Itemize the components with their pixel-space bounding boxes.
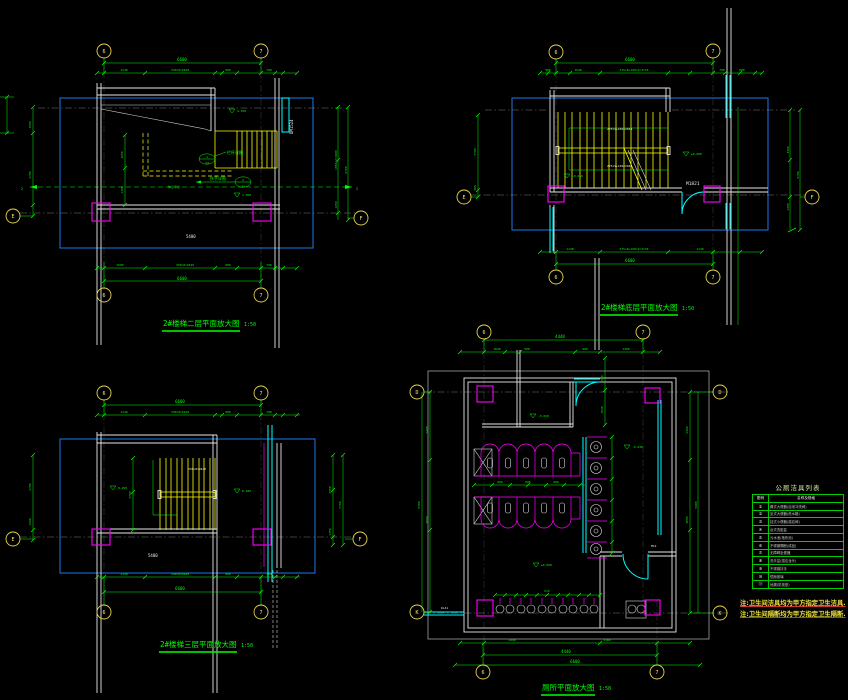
cad-sheet: 2 2 DM1524 66	[0, 0, 848, 700]
dim-label: 760	[266, 68, 272, 72]
legend-name: 不锈钢隔断(成品)	[769, 541, 844, 549]
legend-row: ②坐式大便器(低水箱)	[753, 510, 844, 518]
level-marker: -0.020 -0.020 ±0.000	[530, 414, 643, 567]
legend-row: ⑦无障碍坐便器	[753, 549, 844, 557]
dim-label: 1140	[120, 410, 127, 414]
dim-label: 3300	[328, 486, 332, 493]
dim-label: 3000	[685, 516, 689, 523]
room-dim-label: 5400	[148, 553, 158, 558]
drawing-scale: 1:50	[241, 643, 253, 649]
axis-bubble-label: F	[358, 537, 361, 543]
window	[550, 75, 730, 251]
dim-label: 330×8=2640	[176, 263, 194, 267]
dim-label: 1500	[116, 263, 123, 267]
dim-label: 760	[266, 572, 272, 576]
leader-arrow	[196, 181, 201, 184]
level-value: 4.350	[237, 109, 246, 113]
wc-column	[583, 437, 607, 558]
dim-label: 275×8+169×2=2718	[620, 68, 649, 72]
dim-label: 1350	[328, 528, 332, 535]
axis-bubble-label: F	[359, 216, 362, 222]
dim-label: 500	[524, 347, 530, 351]
dim-label: 1140	[120, 572, 127, 576]
plan-top-right: 275×9+169=2644 275×9+169=2644 M1821 6600…	[457, 8, 819, 350]
axis-bubble-label: 7	[259, 49, 262, 55]
dim-label: 600	[553, 480, 559, 484]
legend-symbol: ⑧	[753, 557, 769, 565]
dim-label: 900	[545, 68, 551, 72]
axis-bubble-label: D	[718, 390, 721, 396]
legend-row: ⑧洗手盆(感应龙头)	[753, 557, 844, 565]
dim-label: 1200	[28, 518, 32, 525]
door-label: M12	[651, 544, 657, 548]
dim-label: 1650×2=3300	[334, 150, 338, 170]
cad-canvas: 2 2 DM1524 66	[0, 0, 848, 700]
section-mark: 2	[21, 187, 23, 191]
dim-label: 2700	[28, 171, 32, 178]
handrail-cap	[556, 147, 559, 155]
axis-bubble-label: 7	[711, 275, 714, 281]
column	[253, 203, 271, 221]
handrail	[558, 148, 668, 153]
entry-door-arc	[576, 382, 600, 406]
axis-bubble-label: 6	[102, 610, 105, 616]
legend-name: 蹲式大便器(自闭冲洗阀)	[769, 502, 844, 510]
dimension-lines	[422, 338, 713, 667]
window	[282, 98, 289, 132]
level-value: 8.100	[242, 489, 251, 493]
drawing-title-block: 2#楼梯三层平面放大图 1:50	[159, 639, 253, 652]
dim-label: 1350	[786, 203, 790, 210]
legend-header-name: 名称及规格	[769, 495, 844, 503]
squat-toilet	[560, 503, 565, 513]
squat-toilet	[542, 458, 547, 468]
axis-bubble-label: F	[810, 195, 813, 201]
basin-row	[496, 598, 645, 613]
plan-bottom-left: 330×8=2640 6600 1140 330×8=2640 900 760 …	[6, 386, 367, 693]
notes-block: 注:卫生间洁具均为甲方指定卫生洁具. 注:卫生间隔断均为甲方指定卫生隔断.	[740, 599, 848, 620]
dim-label: 2400	[425, 426, 429, 433]
walls	[550, 8, 768, 350]
dim-label: 330×8=2640	[171, 410, 189, 414]
callout-num: 1	[206, 155, 208, 159]
level-value: ±0.000	[691, 152, 702, 156]
handrail-cap	[667, 147, 670, 155]
dim-label: 900	[225, 572, 231, 576]
axis-bubble-label: 7	[259, 293, 262, 299]
legend-symbol: ⑦	[753, 549, 769, 557]
dim-label: 6600	[175, 586, 185, 591]
column	[477, 600, 493, 616]
callout-num: 2	[242, 178, 244, 182]
dim-label: 760	[266, 410, 272, 414]
dim-label: 4440	[555, 334, 565, 339]
dim-label: 1140	[696, 247, 703, 251]
room-dim-label: 5400	[186, 234, 196, 239]
drawing-title-block: 2#楼梯底层平面放大图 1:50	[600, 302, 694, 315]
dim-label: 330×8=2640	[171, 68, 189, 72]
dim-label: 3160	[603, 638, 610, 642]
drawing-scale: 1:50	[682, 306, 694, 312]
level-marker: -0.450 ±0.000	[564, 152, 702, 178]
tread-note: 275×9+169=2644	[607, 127, 632, 131]
drawing-title: 厕所平面放大图	[542, 682, 595, 692]
axis-bubble-label: 7	[711, 49, 714, 55]
stair-treads: 275×9+169=2644 275×9+169=2644	[556, 112, 670, 190]
dim-label: 300	[473, 185, 477, 191]
squat-toilet	[542, 503, 547, 513]
legend-name: 洗手盆(感应龙头)	[769, 557, 844, 565]
axis-bubble-label: E	[11, 214, 14, 220]
level-value: -0.020	[632, 445, 643, 449]
dim-label: 900	[600, 375, 604, 381]
stair-treads: 330×8=2640	[153, 458, 216, 530]
legend-header-sym: 图例	[753, 495, 769, 503]
tread-note: 275×9+169=2644	[607, 164, 632, 168]
callout-text: 扶手详图	[210, 175, 226, 181]
dim-label: 800	[739, 68, 745, 72]
legend-row: ⑩镜面玻璃	[753, 572, 844, 580]
detail-callout: 1 24 栏杆详图	[199, 149, 243, 165]
dim-label: 1500	[28, 121, 32, 128]
dimension-labels: 6600 1140 330×8=2640 900 760 1140 330×8=…	[28, 399, 342, 591]
dim-label: 760	[266, 263, 272, 267]
legend-row: ⑨不锈钢扶手	[753, 565, 844, 573]
legend-name: 无障碍坐便器	[769, 549, 844, 557]
dim-label: 6600	[175, 399, 185, 404]
dim-label: 2700	[128, 491, 132, 498]
axis-bubble-label: 7	[655, 670, 658, 676]
plan-toilet: M12 DL41 4440 1640 500 900 1400 1440 31	[410, 325, 730, 695]
column	[477, 386, 493, 402]
dim-label: 900	[582, 347, 588, 351]
dim-label: 1140	[120, 68, 127, 72]
squat-toilet	[524, 458, 529, 468]
dim-label: 900	[225, 263, 231, 267]
dim-label: 2400	[685, 426, 689, 433]
legend-row: ③挂式小便器(感应阀)	[753, 518, 844, 526]
legend-header-row: 图例 名称及规格	[753, 495, 844, 503]
dimension-labels: 6600 1140 330×8=2640 900 760 1500 330×8=…	[28, 57, 348, 281]
door: M1821	[682, 181, 704, 214]
dimension-lines	[0, 58, 354, 288]
axis-bubble-label: 6	[481, 670, 484, 676]
level-value: -0.450	[572, 174, 583, 178]
callout-sheet: 24	[205, 161, 209, 165]
legend-name: 镜面玻璃	[769, 572, 844, 580]
walls	[97, 432, 281, 693]
dim-label: 1440	[508, 638, 515, 642]
dim-label: 1350	[334, 201, 338, 208]
legend-symbol: ①	[753, 502, 769, 510]
dim-label: 3000	[425, 516, 429, 523]
drawing-title: 2#楼梯底层平面放大图	[601, 302, 678, 312]
axis-bubble-label: 6	[102, 391, 105, 397]
squat-toilet	[560, 458, 565, 468]
level-value: -0.020	[538, 414, 549, 418]
axis-bubble-label: E	[462, 195, 465, 201]
legend-name: 不锈钢扶手	[769, 565, 844, 573]
section-line: 2 2	[21, 185, 358, 191]
axis-bubble-label: 7	[259, 610, 262, 616]
legend-row: ①蹲式大便器(自闭冲洗阀)	[753, 502, 844, 510]
legend-row: ⑤污水池(拖布池)	[753, 533, 844, 541]
axis-bubble-label: 6	[102, 49, 105, 55]
dim-label: 5700	[344, 166, 348, 173]
dim-label: 4440	[561, 649, 571, 654]
axis-bubble-label: 7	[259, 391, 262, 397]
inner-door-arc	[623, 554, 648, 579]
dim-label: 2700	[473, 148, 477, 155]
legend-symbol: ③	[753, 518, 769, 526]
drawing-scale: 1:50	[599, 686, 611, 692]
level-value: 1.050	[242, 193, 251, 197]
dim-label: 700	[719, 68, 725, 72]
legend-table: 图例 名称及规格 ①蹲式大便器(自闭冲洗阀) ②坐式大便器(低水箱) ③挂式小便…	[752, 494, 844, 589]
dim-label: 6600	[177, 57, 187, 62]
axis-bubble-label: D	[415, 390, 418, 396]
dim-label: 6600	[625, 258, 635, 263]
dim-label: 600	[525, 480, 531, 484]
dim-label: 2700	[28, 483, 32, 490]
platform-label: 休息平台	[168, 184, 180, 189]
axis-bubble-label: K	[718, 611, 721, 617]
fixture-legend: 公厕洁具列表 图例 名称及规格 ①蹲式大便器(自闭冲洗阀) ②坐式大便器(低水箱…	[748, 482, 848, 589]
legend-name: 挂式小便器(感应阀)	[769, 518, 844, 526]
axis-bubble-label: K	[415, 610, 418, 616]
drawing-title: 2#楼梯三层平面放大图	[160, 639, 237, 649]
door-label: M1821	[686, 181, 700, 187]
dim-label: 1650	[120, 151, 124, 158]
axis-bubble-label: 6	[482, 330, 485, 336]
level-value: ±0.000	[541, 563, 552, 567]
legend-symbol: ⑨	[753, 565, 769, 573]
legend-symbol: ⑥	[753, 541, 769, 549]
legend-name: 坐式大便器(低水箱)	[769, 510, 844, 518]
handrail	[160, 492, 215, 497]
axis-bubble-label: E	[11, 537, 14, 543]
drawing-scale: 1:50	[244, 322, 256, 328]
dim-label: 615	[544, 589, 550, 593]
axis-bubble-label: 7	[641, 330, 644, 336]
window	[264, 425, 272, 582]
handrail-cap	[158, 491, 161, 499]
dim-label: 5400	[694, 501, 698, 508]
dim-label: 1540	[600, 406, 604, 413]
dim-label: 1140	[566, 247, 573, 251]
legend-name: 污水池(拖布池)	[769, 533, 844, 541]
legend-name: 地漏(防臭型)	[769, 580, 844, 588]
dim-label: 1640	[493, 347, 500, 351]
dim-label: 5700	[338, 501, 342, 508]
callout-sheet: 24	[241, 185, 245, 189]
handrail-cap	[213, 491, 216, 499]
legend-name: 台式洗脸盆	[769, 526, 844, 534]
legend-symbol: ⑤	[753, 533, 769, 541]
walls	[464, 350, 676, 632]
legend-symbol: ⑩	[753, 572, 769, 580]
squat-toilet	[524, 503, 529, 513]
dim-label: 275×8+169×2=2718	[620, 247, 649, 251]
dim-label: 1100	[120, 186, 124, 193]
wall-accents: DL41	[424, 400, 661, 615]
dim-label: 6600	[625, 57, 635, 62]
dim-label: 330×8=2640	[171, 572, 189, 576]
outer-boundary	[428, 371, 709, 639]
legend-symbol: ④	[753, 526, 769, 534]
dim-label: 6600	[177, 276, 187, 281]
note-line: 注:卫生间隔断均为甲方指定卫生隔断.	[740, 610, 848, 621]
legend-row: ⑪地漏(防臭型)	[753, 580, 844, 588]
legend-title: 公厕洁具列表	[748, 482, 848, 492]
callout-text: 栏杆详图	[227, 149, 243, 155]
dim-label: 3300	[786, 146, 790, 153]
section-mark: 2	[356, 187, 358, 191]
tread-note: 330×8=2640	[188, 467, 206, 471]
legend-row: ④台式洗脸盆	[753, 526, 844, 534]
dim-label: 900	[225, 68, 231, 72]
drawing-title-block: 2#楼梯二层平面放大图 1:50	[162, 318, 256, 331]
axis-lines	[470, 58, 805, 270]
dim-label: 5700	[796, 171, 800, 178]
dim-label: 1400	[622, 347, 629, 351]
squat-toilet	[506, 503, 511, 513]
window-label: DM1524	[289, 119, 294, 134]
plan-top-left: 2 2 DM1524 66	[0, 44, 368, 348]
pipe-label: DL41	[441, 606, 448, 610]
drawing-title-block: 厕所平面放大图 1:50	[541, 682, 611, 695]
axis-lines	[20, 58, 355, 290]
legend-symbol: ②	[753, 510, 769, 518]
axis-bubble-label: 6	[102, 293, 105, 299]
drawing-title: 2#楼梯二层平面放大图	[163, 318, 240, 328]
dim-label: 600	[497, 480, 503, 484]
axis-bubble-label: 6	[554, 275, 557, 281]
dim-label: 900	[225, 410, 231, 414]
axis-bubble-label: 6	[554, 50, 557, 56]
legend-symbol: ⑪	[753, 580, 769, 588]
dim-label: 5400	[417, 501, 421, 508]
dim-label: 1640	[574, 68, 581, 72]
note-line: 注:卫生间洁具均为甲方指定卫生洁具.	[740, 599, 848, 610]
dim-label: 6600	[570, 659, 580, 664]
axis-lines	[424, 338, 730, 668]
level-value: 8.250	[118, 486, 127, 490]
stair-treads	[143, 131, 277, 176]
legend-row: ⑥不锈钢隔断(成品)	[753, 541, 844, 549]
squat-toilet	[506, 458, 511, 468]
